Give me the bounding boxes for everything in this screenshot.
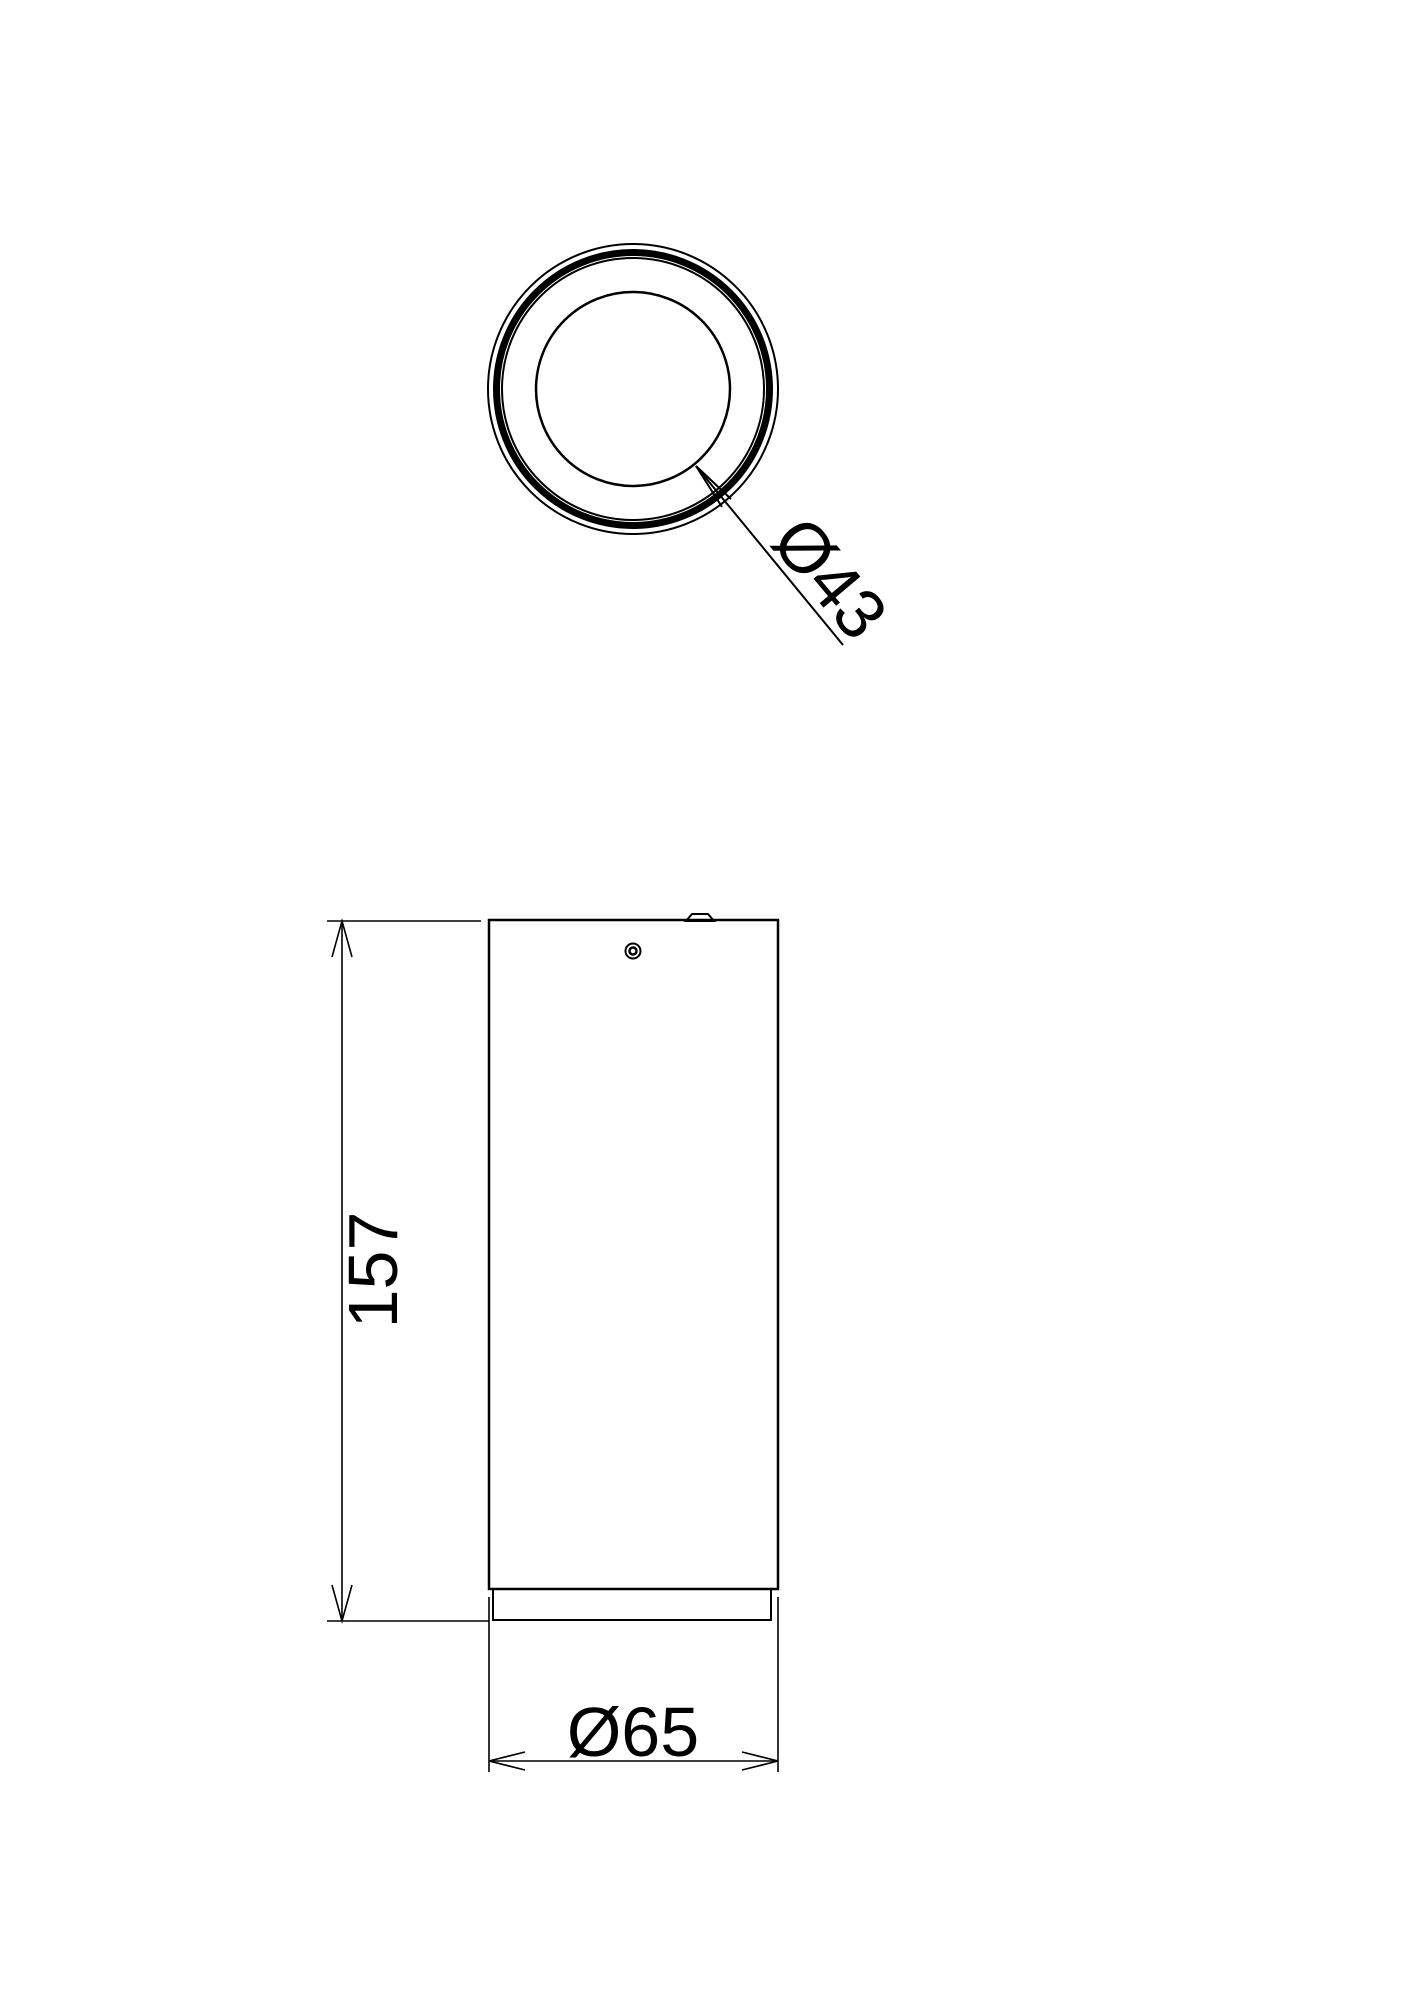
housing-outer-circle bbox=[488, 244, 778, 534]
luminaire-dimension-drawing: Ø43 157 Ø65 bbox=[0, 0, 1414, 2000]
bezel-thick-ring bbox=[497, 253, 770, 526]
bezel-inner-edge-circle bbox=[502, 258, 764, 520]
bottom-trim-ring-outline bbox=[493, 1589, 771, 1620]
screw-inner-circle bbox=[630, 948, 637, 955]
diameter-dimension: Ø65 bbox=[489, 1597, 778, 1772]
lens-diameter-label: Ø43 bbox=[758, 502, 903, 653]
body-diameter-label: Ø65 bbox=[567, 1693, 699, 1771]
cylinder-body-outline bbox=[489, 920, 778, 1589]
height-label: 157 bbox=[334, 1212, 412, 1329]
top-view: Ø43 bbox=[488, 244, 902, 654]
height-dimension: 157 bbox=[327, 921, 489, 1621]
technical-drawing-page: Ø43 157 Ø65 bbox=[0, 0, 1414, 2000]
screw-outer-circle bbox=[626, 944, 641, 959]
lens-circle bbox=[536, 292, 730, 486]
front-view bbox=[489, 914, 778, 1620]
